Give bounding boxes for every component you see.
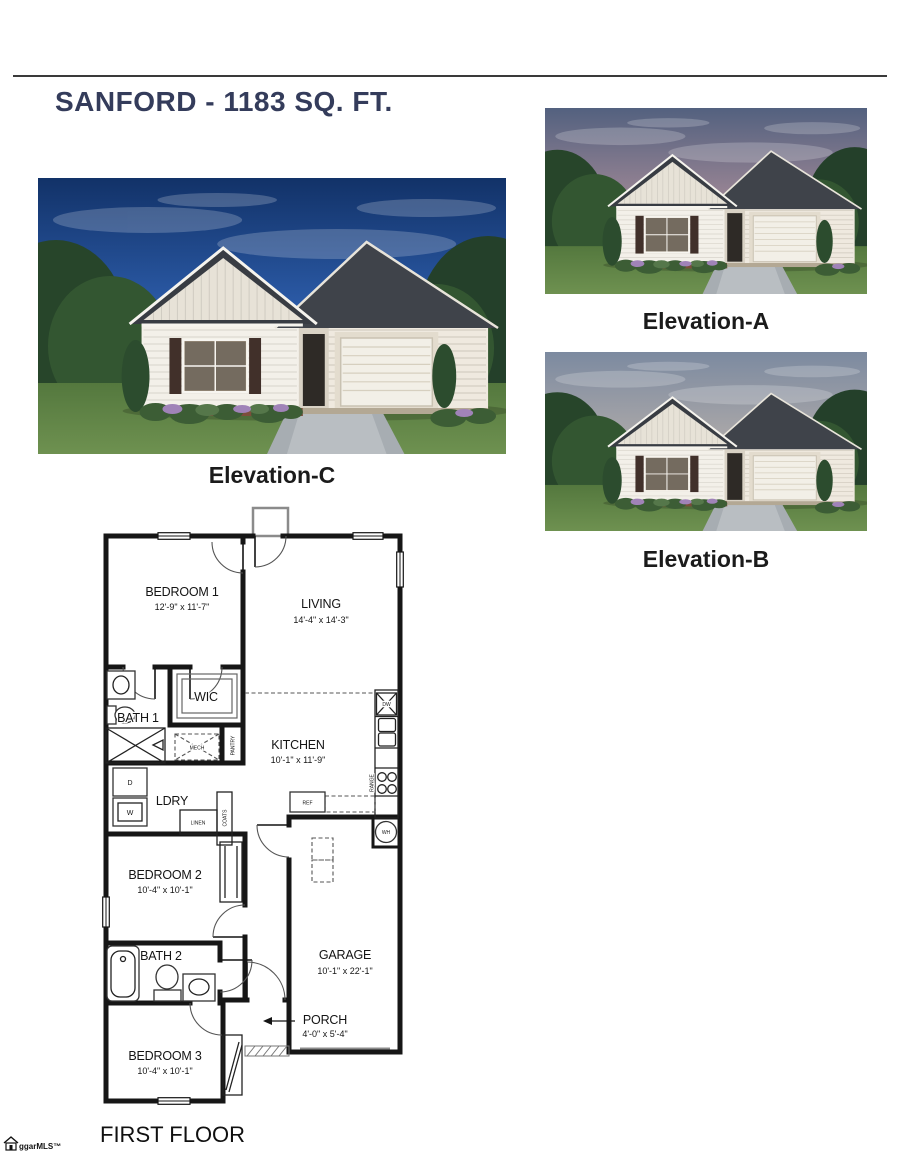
- bedroom2-closet: [220, 842, 242, 902]
- elevation-b-photo: [545, 352, 867, 531]
- room-dims-kitchen: 10'-1" x 11'-9": [271, 755, 326, 765]
- laundry-units: [113, 768, 147, 826]
- room-dims-porch: 4'-0" x 5'-4": [302, 1029, 347, 1039]
- room-label-bath1: BATH 1: [117, 711, 159, 725]
- room-label-porch: PORCH: [303, 1013, 347, 1027]
- plan-sheet: SANFORD - 1183 SQ. FT. Elevation-C Eleva…: [0, 0, 900, 1165]
- room-label-living: LIVING: [301, 597, 341, 611]
- room-label-bedroom2: BEDROOM 2: [128, 868, 201, 882]
- top-rule: [13, 75, 887, 77]
- floor-plan: BEDROOM 1 12'-9" x 11'-7" LIVING 14'-4" …: [95, 500, 415, 1118]
- watermark-house-icon: [3, 1136, 19, 1151]
- room-dims-bedroom2: 10'-4" x 10'-1": [137, 885, 192, 895]
- room-dims-living: 14'-4" x 14'-3": [293, 615, 348, 625]
- wh-label: WH: [382, 830, 391, 836]
- linen-label: LINEN: [191, 821, 206, 827]
- elevation-a-photo: [545, 108, 867, 294]
- room-label-bath2: BATH 2: [140, 949, 182, 963]
- bedroom3-closet: [223, 1035, 242, 1095]
- pantry-label: PANTRY: [231, 735, 237, 755]
- mls-watermark: ggarMLS™: [3, 1136, 61, 1151]
- room-label-ldry: LDRY: [156, 794, 189, 808]
- interior-walls: [106, 536, 398, 1003]
- dryer-label: D: [127, 780, 132, 787]
- entry-stoop: [253, 508, 288, 536]
- attic-access: [312, 838, 333, 882]
- room-label-kitchen: KITCHEN: [271, 738, 325, 752]
- dw-label: DW: [382, 702, 391, 708]
- range-label: RANGE: [370, 773, 376, 791]
- room-dims-bedroom1: 12'-9" x 11'-7": [155, 602, 210, 612]
- room-dims-bedroom3: 10'-4" x 10'-1": [137, 1066, 192, 1076]
- elevation-c-photo: [38, 178, 506, 454]
- mech-label: MECH: [190, 746, 205, 752]
- room-label-wic: WIC: [194, 690, 218, 704]
- elevation-b-label: Elevation-B: [545, 546, 867, 573]
- watermark-text: ggarMLS™: [19, 1142, 61, 1151]
- exterior-walls: [106, 536, 400, 1101]
- room-label-bedroom1: BEDROOM 1: [145, 585, 218, 599]
- page-title: SANFORD - 1183 SQ. FT.: [55, 86, 393, 118]
- room-label-garage: GARAGE: [319, 948, 371, 962]
- elevation-c-label: Elevation-C: [38, 462, 506, 489]
- coats-label: COATS: [223, 809, 229, 827]
- elevation-a-label: Elevation-A: [545, 308, 867, 335]
- first-floor-label: FIRST FLOOR: [100, 1122, 245, 1148]
- porch-steps: [245, 1046, 289, 1056]
- ref-label: REF: [303, 801, 313, 807]
- room-dims-garage: 10'-1" x 22'-1": [317, 966, 372, 976]
- room-label-bedroom3: BEDROOM 3: [128, 1049, 201, 1063]
- washer-label: W: [127, 810, 134, 817]
